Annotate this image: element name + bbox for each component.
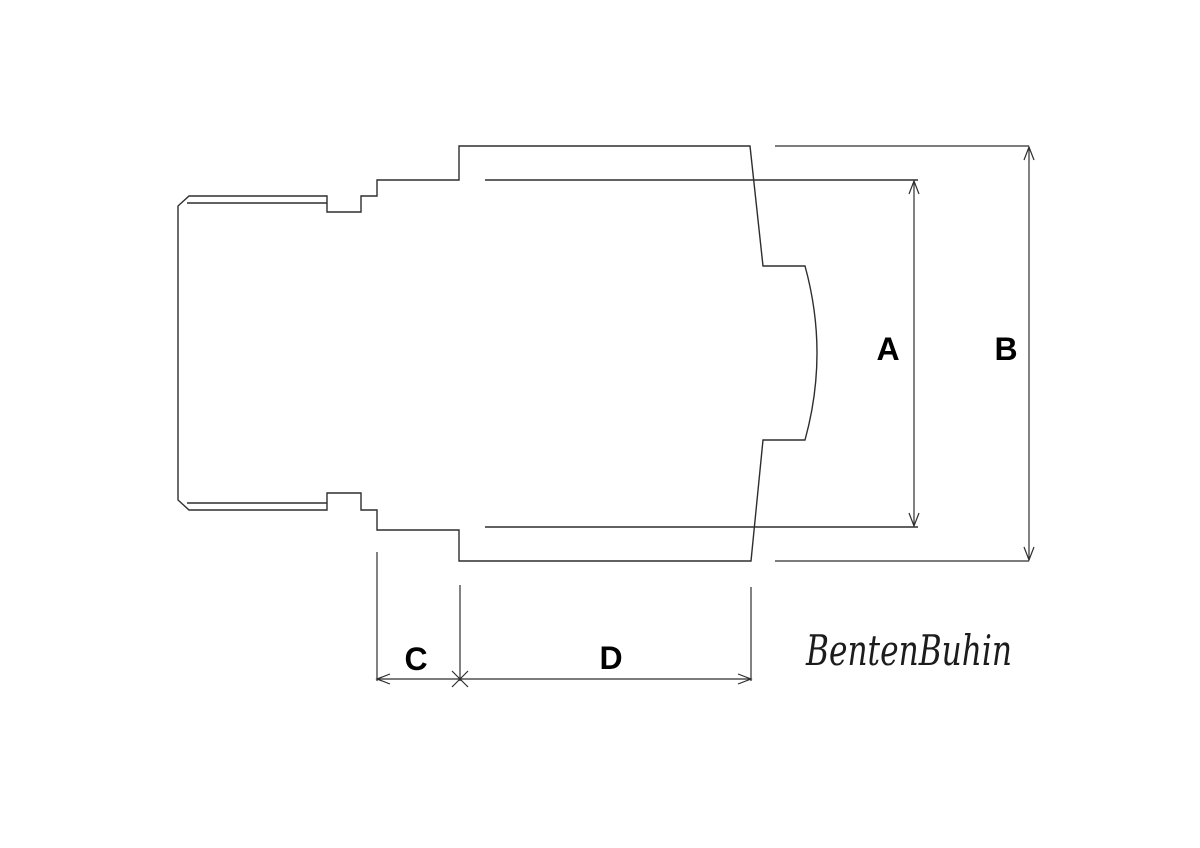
part-outline [178,146,918,561]
outer-profile-path [178,146,817,561]
dimension-c-d [377,552,751,687]
dimension-a [909,181,919,526]
technical-drawing: A B C D BentenBuhin [0,0,1200,848]
dim-label-b: B [994,331,1017,367]
dim-label-a: A [876,331,899,367]
drawing-canvas: A B C D BentenBuhin [0,0,1200,848]
brand-signature: BentenBuhin [805,626,1012,675]
dim-label-c: C [404,641,427,677]
dim-label-d: D [599,640,622,676]
